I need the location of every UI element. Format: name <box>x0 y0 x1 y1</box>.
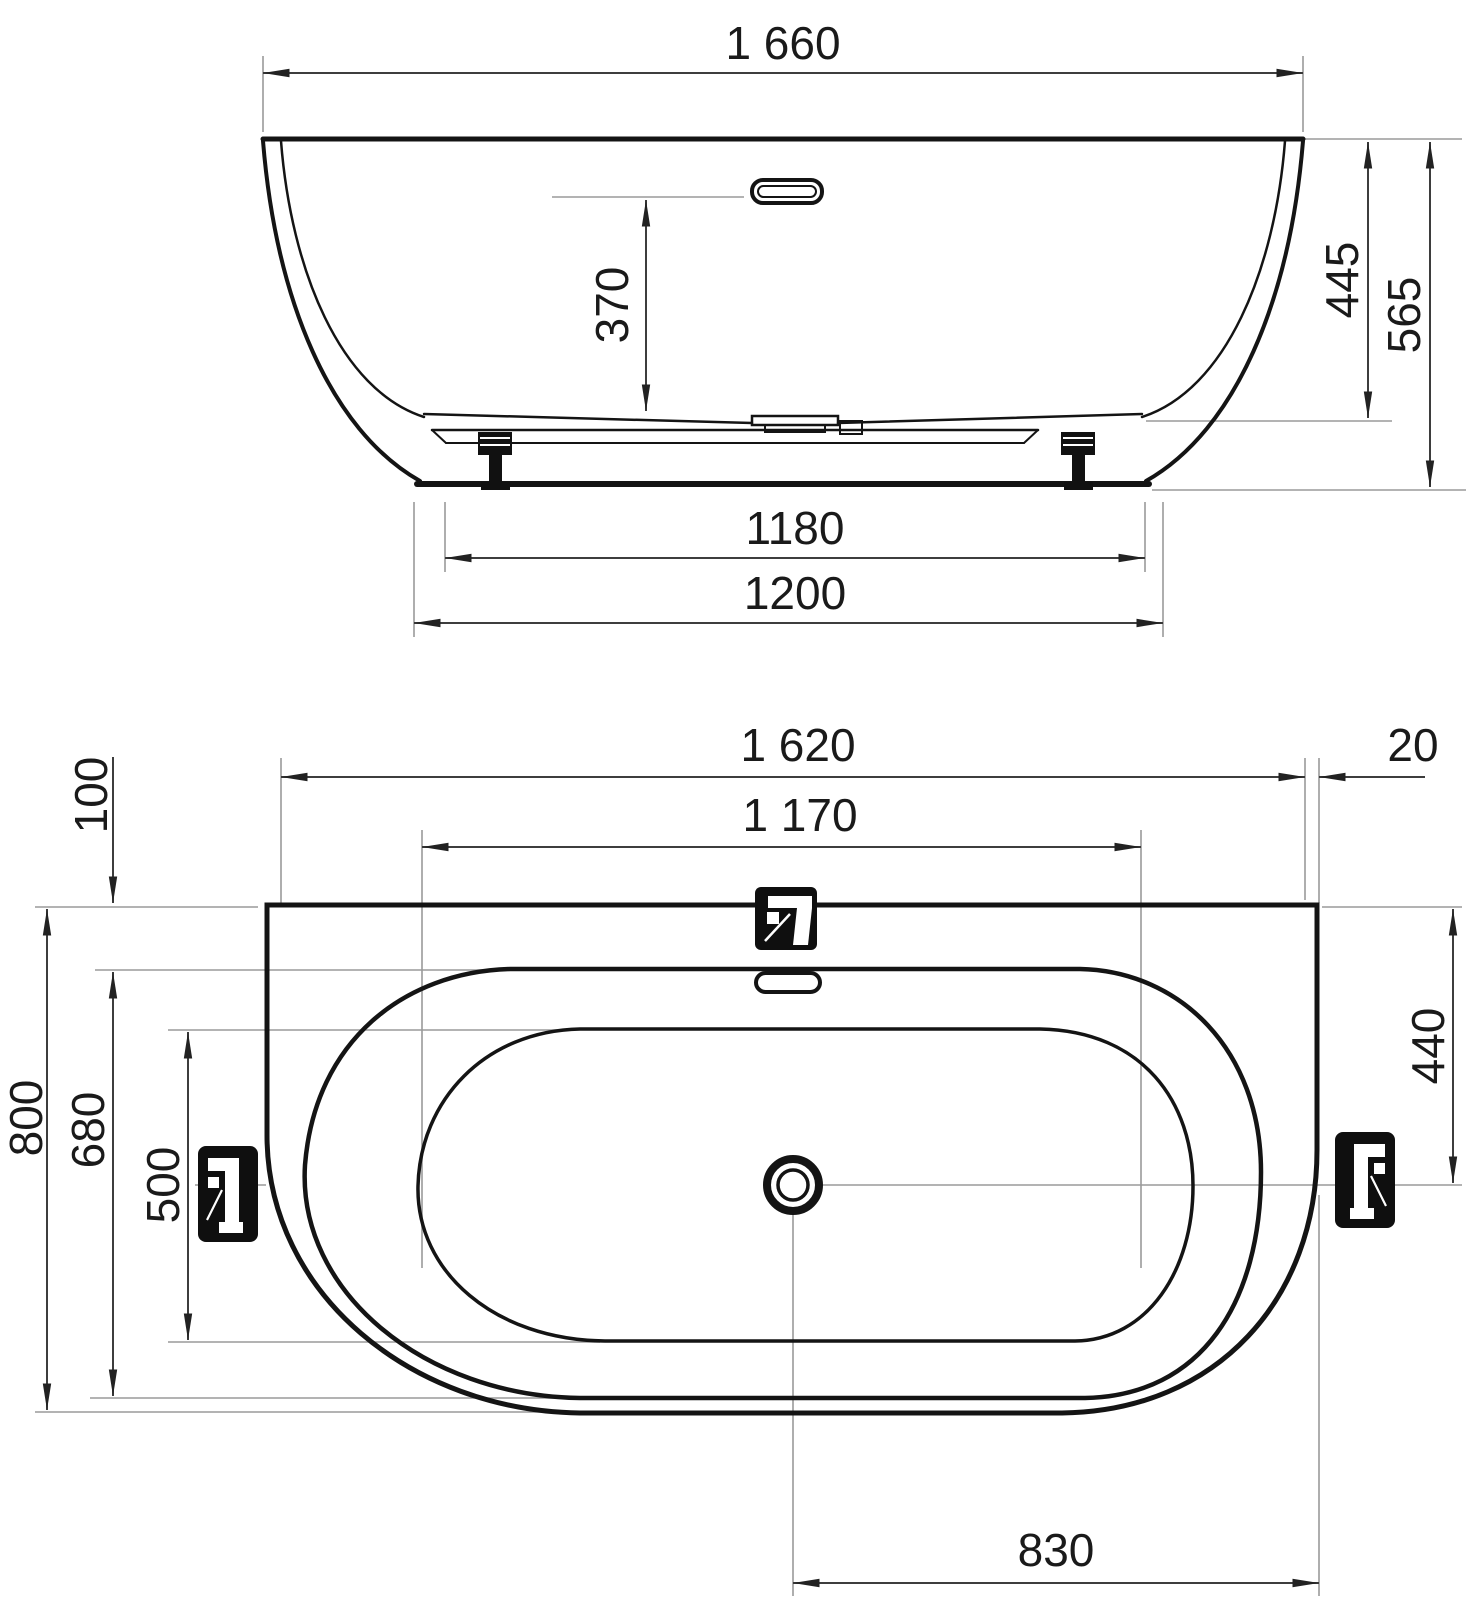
dim-label-axis-offset: 440 <box>1402 1008 1454 1085</box>
dim-label-floor-width: 500 <box>137 1147 189 1224</box>
drawing-canvas: 1 660 370 445 565 1180 1200 <box>0 0 1472 1600</box>
overflow-slot-plan <box>756 973 820 992</box>
drain-fitting <box>752 416 838 425</box>
side-dimensions: 1 660 370 445 565 1180 1200 <box>263 17 1430 623</box>
faucet-icon-right <box>1335 1132 1395 1228</box>
basin-floor-right <box>838 414 1142 423</box>
bathtub-dimension-drawing: 1 660 370 445 565 1180 1200 <box>0 0 1472 1600</box>
inner-wall-left <box>281 141 424 417</box>
dim-label-overall-length: 1 660 <box>725 17 840 69</box>
dim-label-overflow-height: 370 <box>586 267 638 344</box>
faucet-icon-left <box>198 1146 258 1242</box>
dim-label-base-inner: 1180 <box>746 502 845 554</box>
dim-label-back-offset: 100 <box>65 757 117 834</box>
basin-floor-left <box>424 414 752 423</box>
tub-plan-outline <box>267 905 1317 1413</box>
side-view: 1 660 370 445 565 1180 1200 <box>263 17 1466 637</box>
dim-label-body-length: 1 620 <box>740 719 855 771</box>
overflow-slot-icon <box>752 180 822 203</box>
inner-wall-right <box>1142 141 1285 417</box>
inner-rim-edge <box>305 969 1261 1398</box>
dim-label-overall-height: 565 <box>1378 277 1430 354</box>
dim-label-lip: 20 <box>1387 719 1438 771</box>
dim-label-depth-to-ledge: 445 <box>1316 242 1368 319</box>
support-frame-end-left <box>432 430 446 443</box>
drain-circle-inner <box>778 1170 808 1200</box>
faucet-icon <box>755 887 817 950</box>
tub-profile <box>263 139 1303 484</box>
dim-label-base-outer: 1200 <box>744 567 846 619</box>
dim-label-inner-width: 680 <box>62 1092 114 1169</box>
support-frame-end-right <box>1024 430 1038 443</box>
drain-circle-icon <box>767 1159 819 1211</box>
plan-view: 1 620 20 1 170 100 800 680 500 440 830 <box>0 719 1462 1596</box>
dim-label-inner-length: 1 170 <box>742 789 857 841</box>
dim-label-drain-offset: 830 <box>1018 1524 1095 1576</box>
dim-label-overall-width: 800 <box>0 1080 52 1157</box>
